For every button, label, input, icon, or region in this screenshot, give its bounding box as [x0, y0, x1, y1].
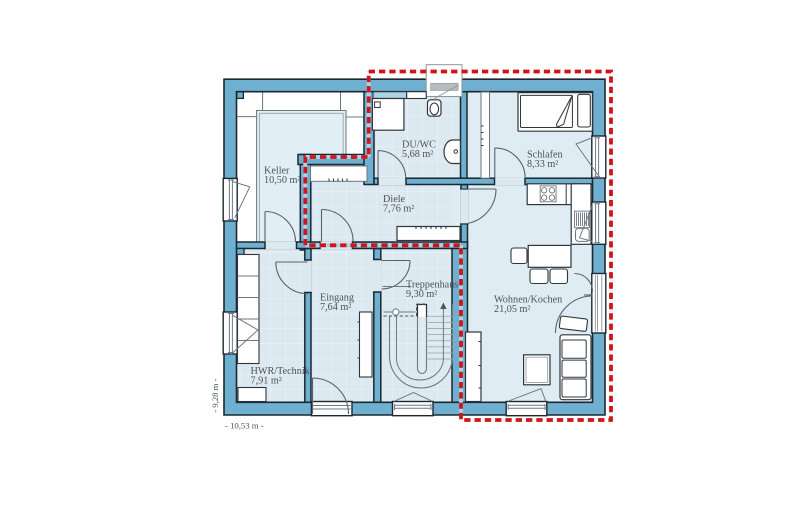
svg-text:7,64 m²: 7,64 m²: [320, 302, 351, 313]
svg-text:7,76 m²: 7,76 m²: [383, 203, 414, 214]
svg-text:5,68 m²: 5,68 m²: [402, 149, 433, 160]
svg-text:10,50 m²: 10,50 m²: [264, 175, 300, 186]
svg-text:- 10,53 m -: - 10,53 m -: [225, 421, 264, 431]
svg-text:- 9,28 m -: - 9,28 m -: [210, 378, 220, 412]
svg-text:9,30 m²: 9,30 m²: [406, 289, 437, 300]
svg-text:8,33 m²: 8,33 m²: [527, 159, 558, 170]
svg-text:21,05 m²: 21,05 m²: [494, 304, 530, 315]
svg-text:7,91 m²: 7,91 m²: [251, 375, 282, 386]
